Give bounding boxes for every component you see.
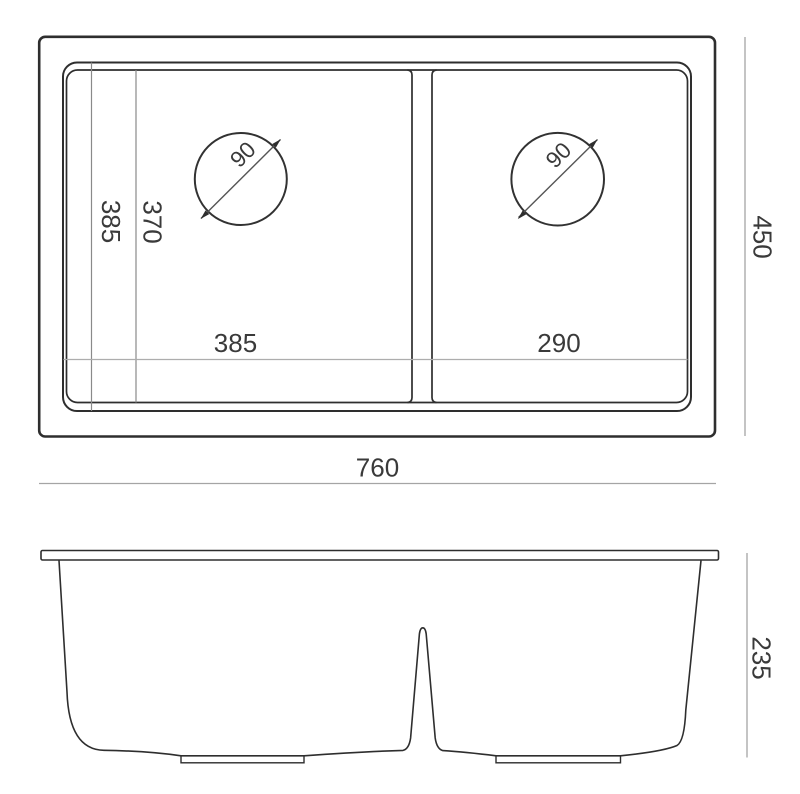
svg-text:290: 290 xyxy=(537,328,580,358)
svg-text:235: 235 xyxy=(747,636,777,679)
svg-text:370: 370 xyxy=(138,200,168,243)
svg-text:385: 385 xyxy=(96,200,126,243)
svg-text:450: 450 xyxy=(748,215,778,258)
svg-text:760: 760 xyxy=(356,453,399,483)
svg-text:385: 385 xyxy=(214,328,257,358)
